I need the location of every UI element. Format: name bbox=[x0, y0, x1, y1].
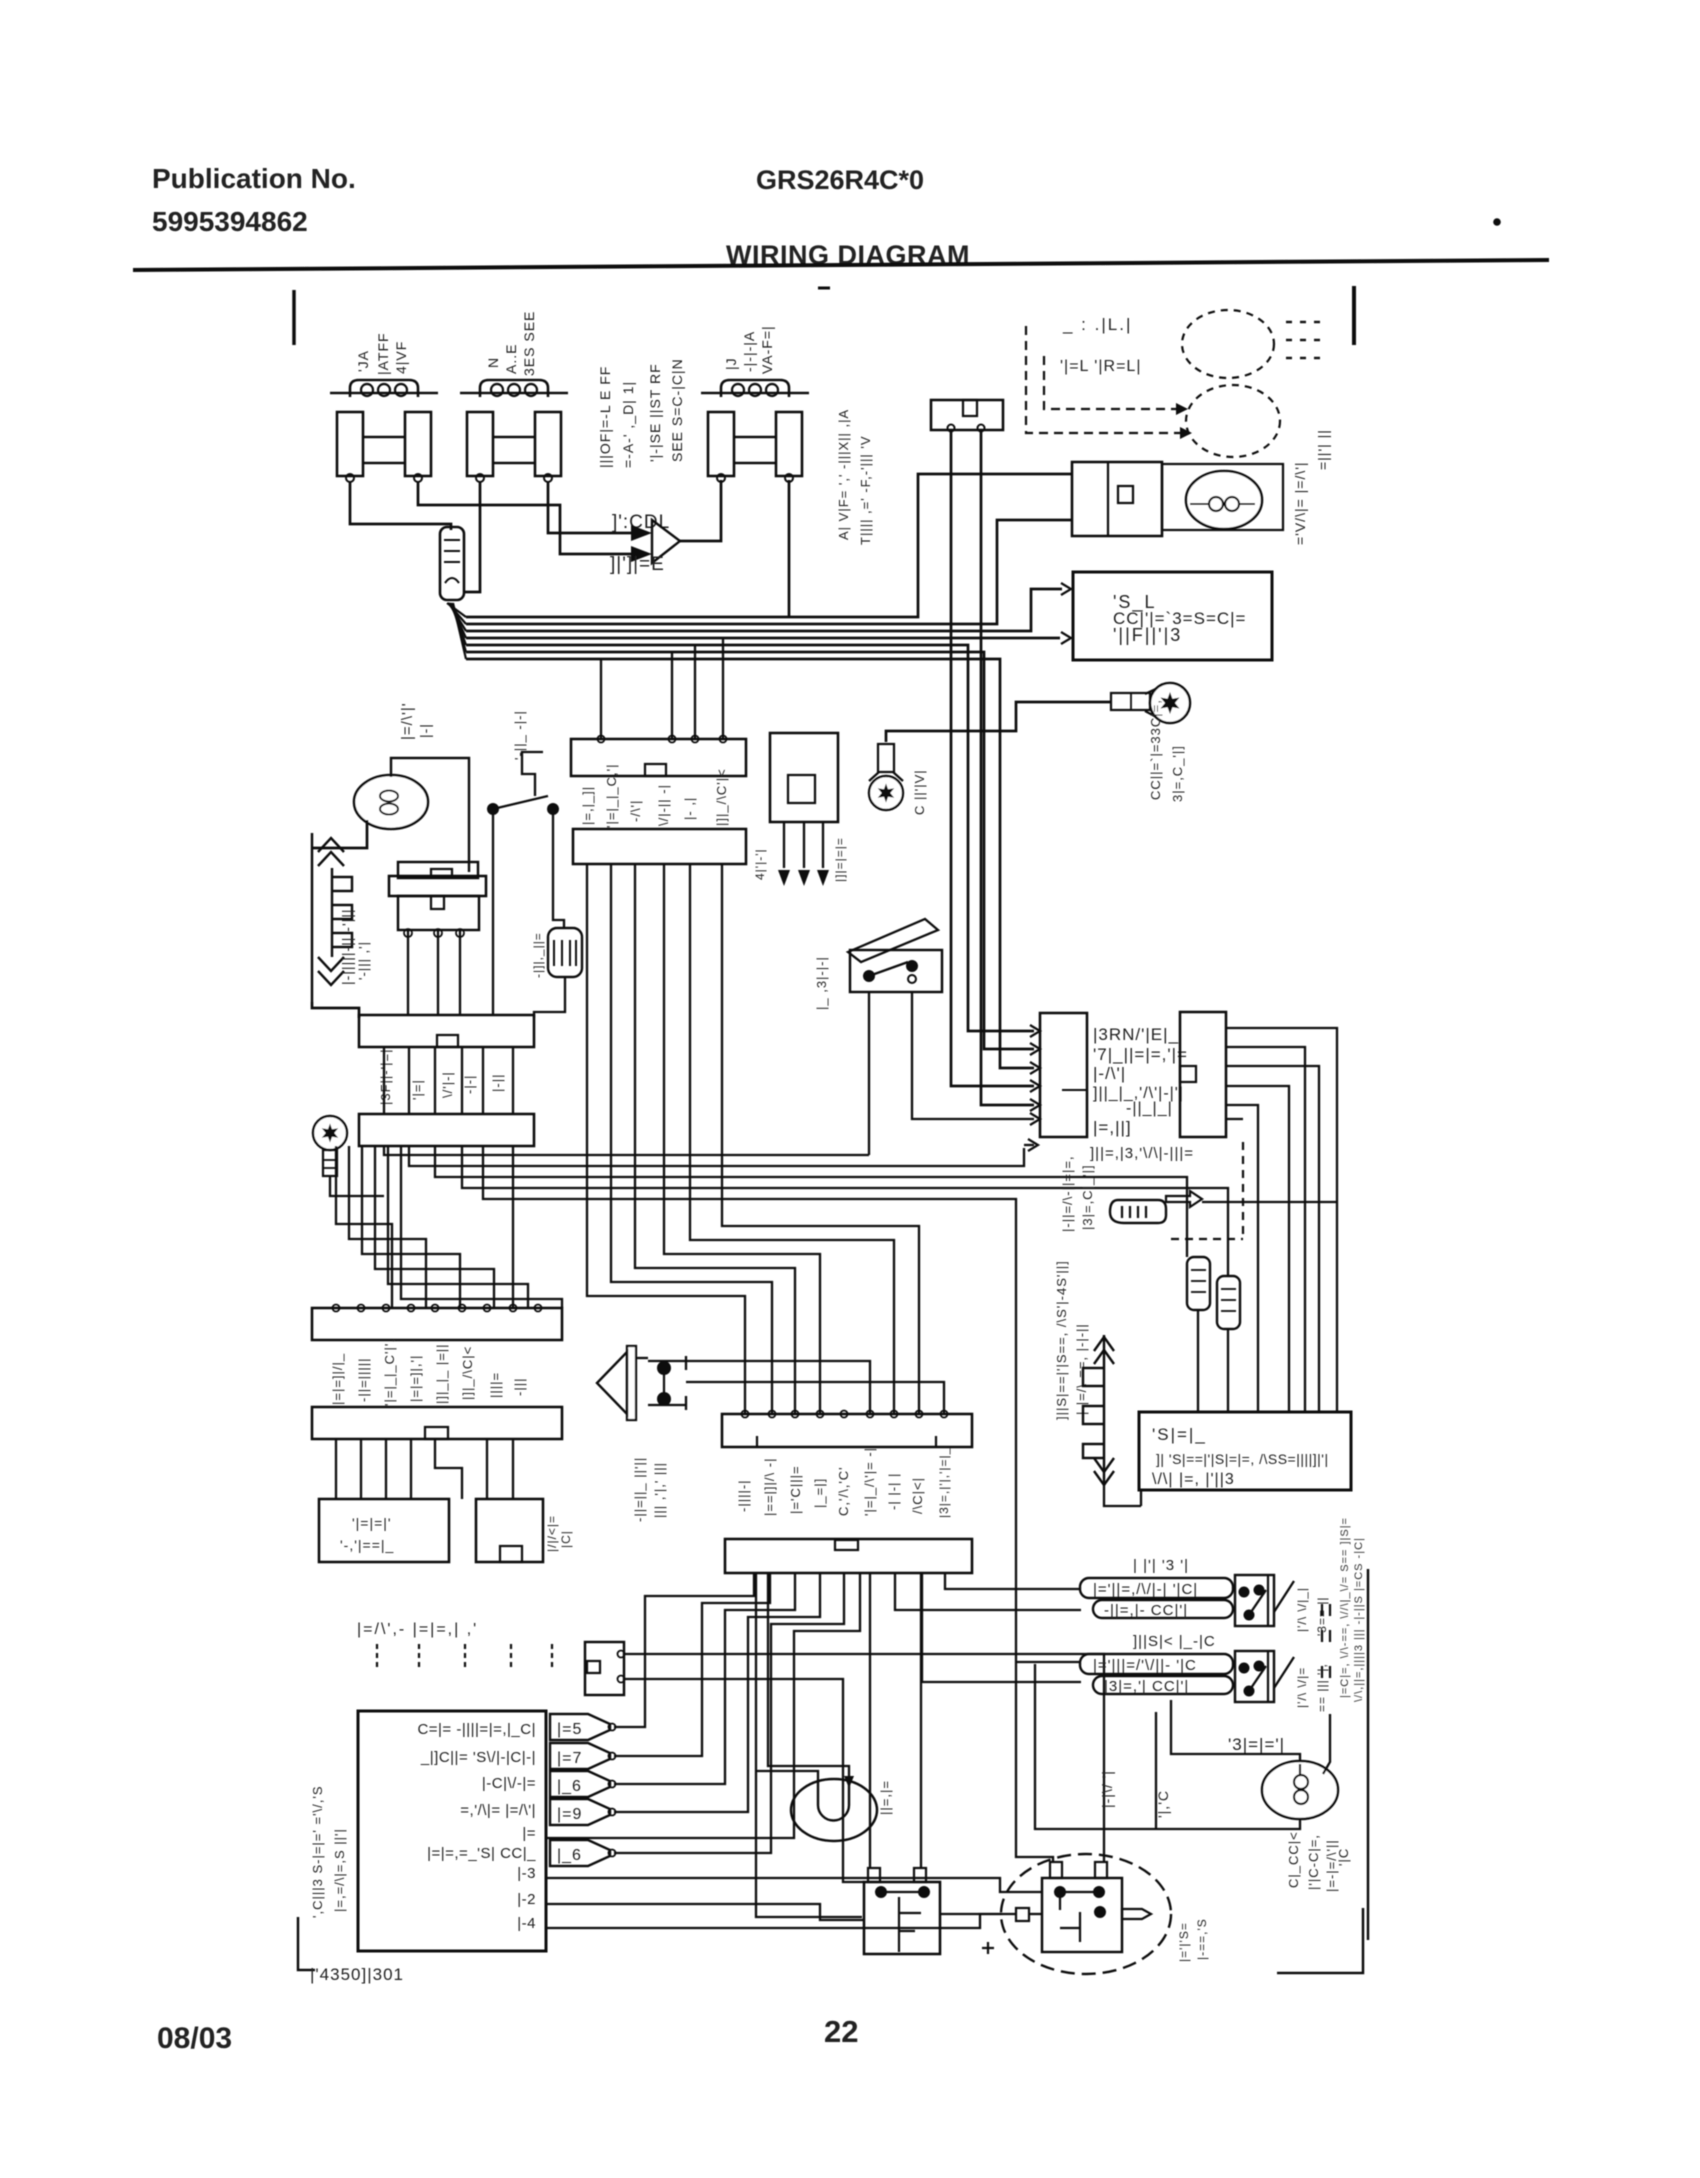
svg-text:'||F||'|3: '||F||'|3 bbox=[1113, 625, 1182, 645]
svg-text:||=,|=: ||=,|= bbox=[878, 1780, 893, 1815]
svg-text:|]|=|=|=: |]|=|=|= bbox=[833, 837, 847, 882]
svg-text:GRS26R4C*0: GRS26R4C*0 bbox=[756, 165, 924, 195]
svg-text:=||'| ||: =||'| || bbox=[1315, 429, 1331, 470]
svg-text:'|=|=|': '|=|=|' bbox=[352, 1515, 392, 1531]
svg-text:|_=|]: |_=|] bbox=[812, 1478, 827, 1508]
svg-text:|3F||-'|=|: |3F||-'|=| bbox=[378, 1049, 393, 1105]
svg-text:|=,||]: |=,||] bbox=[1093, 1118, 1132, 1137]
svg-text:22: 22 bbox=[824, 2014, 858, 2049]
svg-text:5995394862: 5995394862 bbox=[152, 206, 308, 237]
svg-text:]||S|==|'|S==, /\S'|-4S'||]: ]||S|==|'|S==, /\S'|-4S'||] bbox=[1054, 1260, 1069, 1420]
svg-text:|_ ,3|-|-|: |_ ,3|-|-| bbox=[814, 956, 829, 1010]
svg-text:|=/\'|': |=/\'|' bbox=[399, 702, 416, 740]
svg-text:'JA: 'JA bbox=[355, 350, 371, 372]
svg-text:-||=,|- CC|'|: -||=,|- CC|'| bbox=[1104, 1602, 1188, 1619]
svg-text:VA-F=|: VA-F=| bbox=[759, 325, 775, 374]
svg-text:C=|= -||||=|=,|_C|: C=|= -||||=|=,|_C| bbox=[417, 1721, 536, 1738]
svg-text:]||=,|3,'\/\|-|||=: ]||=,|3,'\/\|-|||= bbox=[1090, 1145, 1194, 1162]
svg-text:-/\'|: -/\'| bbox=[628, 800, 643, 822]
svg-text:]||S|< |_-|C: ]||S|< |_-|C bbox=[1133, 1633, 1216, 1650]
svg-text:'|C: '|C bbox=[1336, 1848, 1351, 1866]
svg-text:\/\,||=,||||3 ||| -|-||S |=CS: \/\,||=,||||3 ||| -|-||S |=CS -|C| bbox=[1353, 1537, 1365, 1702]
svg-text:-| |-| |: -| |-| | bbox=[886, 1473, 901, 1510]
svg-text:|='|||=/'\/||- '|C: |='|||=/'\/||- '|C bbox=[1093, 1657, 1197, 1674]
svg-text:|='||=,/\/|-| '|C|: |='||=,/\/|-| '|C| bbox=[1093, 1581, 1198, 1598]
svg-text:CC||=`|=33C|=,: CC||=`|=33C|=, bbox=[1148, 699, 1163, 800]
svg-text:=-A-' ,_D| 1|: =-A-' ,_D| 1| bbox=[620, 381, 636, 468]
svg-text:-|]|,_||=: -|]|,_||= bbox=[531, 932, 545, 978]
svg-text:|_6: |_6 bbox=[557, 1778, 582, 1795]
svg-text:== ||| '|,: == ||| '|, bbox=[1315, 1663, 1329, 1712]
svg-text:-|||: -||| bbox=[512, 1378, 527, 1396]
svg-text:|=,|_]|: |=,|_]| bbox=[580, 786, 595, 825]
svg-text:|3RN/'|E|_: |3RN/'|E|_ bbox=[1093, 1025, 1179, 1044]
svg-text:'3== ||: '3== || bbox=[1315, 1596, 1329, 1636]
svg-text:|'/\ \/|_|: |'/\ \/|_| bbox=[1295, 1587, 1309, 1632]
svg-text:-||=|||||: -||=||||| bbox=[356, 1357, 371, 1402]
svg-text:4|VF: 4|VF bbox=[393, 341, 409, 374]
svg-text:|-||: |-|| bbox=[490, 1074, 505, 1092]
svg-text:||| ,'|,' |||: ||| ,'|,' ||| bbox=[652, 1462, 667, 1518]
svg-text:|-==,'S: |-==,'S bbox=[1195, 1918, 1209, 1960]
svg-text:|3|=,C|_'|]: |3|=,C|_'|] bbox=[1080, 1164, 1095, 1230]
svg-text:'|=L '|R=L|: '|=L '|R=L| bbox=[1060, 358, 1141, 375]
svg-text:_ : .|L.|: _ : .|L.| bbox=[1062, 315, 1132, 334]
svg-text:/\C|<|: /\C|<| bbox=[910, 1477, 925, 1514]
svg-text:|]|_|_ |=||: |]|_|_ |=|| bbox=[434, 1343, 449, 1404]
svg-text:|3|=,'| CC|'|: |3|=,'| CC|'| bbox=[1104, 1678, 1189, 1695]
svg-text:\/'|-|: \/'|-| bbox=[440, 1071, 455, 1098]
svg-text:|-||=/\-||=|=,: |-||=/\-||=|=, bbox=[1060, 1155, 1075, 1232]
svg-text:'-||| ,'|: '-||| ,'| bbox=[356, 941, 371, 980]
svg-text:|=|=]|,'|: |=|=]|,'| bbox=[408, 1355, 423, 1402]
svg-text:| |'| '3 '|: | |'| '3 '| bbox=[1133, 1557, 1189, 1574]
svg-text:SEE S=C-|C|N: SEE S=C-|C|N bbox=[669, 358, 685, 462]
svg-text:|-3: |-3 bbox=[517, 1865, 536, 1882]
svg-text:'|=|: '|=| bbox=[410, 1079, 425, 1100]
svg-text:|'4350]|301: |'4350]|301 bbox=[310, 1965, 404, 1984]
svg-text:|='C|||=: |='C|||= bbox=[788, 1465, 803, 1514]
svg-text:|/|/<|=: |/|/<|= bbox=[545, 1515, 559, 1552]
svg-text:|=: |= bbox=[522, 1825, 536, 1842]
svg-text:|]|_/\C|<: |]|_/\C|< bbox=[460, 1346, 475, 1400]
svg-text:-|-|: -|-| bbox=[462, 1075, 477, 1094]
svg-text:-||||-|: -||||-| bbox=[736, 1479, 751, 1512]
svg-text:'-,'|==|_: '-,'|==|_ bbox=[340, 1537, 394, 1553]
svg-text:|=C|=, \/\-==, \//\|_\/= S== ]: |=C|=, \/\-==, \//\|_\/= S== ]|S|= bbox=[1339, 1517, 1351, 1698]
svg-text:'7|_||=|=,'|=: '7|_||=|=,'|= bbox=[1093, 1045, 1188, 1064]
svg-text:|-|||||-|| -'|||: |-|||||-|| -'||| bbox=[339, 908, 355, 985]
svg-text:'|=|_|_C,'|: '|=|_|_C,'| bbox=[604, 763, 619, 828]
svg-text:=,'/\|= |=/\'|: =,'/\|= |=/\'| bbox=[460, 1802, 536, 1819]
svg-text:|-|: |-| bbox=[417, 723, 433, 738]
svg-text:|]|_/\C'|<: |]|_/\C'|< bbox=[714, 768, 729, 826]
svg-text:|=9: |=9 bbox=[557, 1806, 582, 1823]
svg-text:|-/\'|: |-/\'| bbox=[1093, 1064, 1126, 1083]
svg-text:T|||| ,=' -F,-'||| 'V: T|||| ,=' -F,-'||| 'V bbox=[858, 435, 873, 545]
svg-text:]| 'S|==|'|S|=|=, /\SS=||||]|': ]| 'S|==|'|S|=|=, /\SS=||||]|'| bbox=[1156, 1451, 1329, 1467]
svg-text:|=5: |=5 bbox=[557, 1721, 582, 1738]
svg-text:|==|]|/\ -|: |==|]|/\ -| bbox=[762, 1458, 777, 1516]
svg-text:|C|: |C| bbox=[559, 1530, 573, 1548]
svg-text:|'|C-C|=,: |'|C-C|=, bbox=[1306, 1834, 1321, 1890]
svg-text:|=|=]|/|_: |=|=]|/|_ bbox=[330, 1353, 345, 1405]
svg-text:4|'|-'|: 4|'|-'| bbox=[753, 848, 767, 880]
svg-text:A..E: A..E bbox=[503, 344, 519, 374]
svg-text:'|-|SE ||ST RF: '|-|SE ||ST RF bbox=[647, 363, 663, 462]
svg-text:-|-|-|A: -|-|-|A bbox=[741, 331, 757, 372]
svg-text:|- ,|: |- ,| bbox=[682, 797, 697, 820]
svg-text:A| V|F= ',' -|||X|| ,|A: A| V|F= ',' -|||X|| ,|A bbox=[836, 409, 851, 540]
svg-text:N: N bbox=[485, 357, 501, 368]
svg-text:'|=|_|_C'|',: '|=|_|_C'|', bbox=[382, 1338, 397, 1406]
svg-text:C ||'|V|: C ||'|V| bbox=[912, 769, 927, 815]
svg-text:3ES SEE: 3ES SEE bbox=[521, 311, 537, 376]
svg-text:|'/\ \/|=: |'/\ \/|= bbox=[1295, 1667, 1309, 1708]
svg-text:||||=: ||||= bbox=[488, 1372, 503, 1398]
svg-text:|||OF|=-L E FF: |||OF|=-L E FF bbox=[597, 366, 613, 468]
svg-text:|='|'S=: |='|'S= bbox=[1177, 1922, 1191, 1962]
svg-text:-||_|_|: -||_|_| bbox=[1126, 1100, 1173, 1117]
svg-text:\/\| |=, |'||3: \/\| |=, |'||3 bbox=[1152, 1471, 1235, 1488]
svg-text:C,'/\,'C': C,'/\,'C' bbox=[836, 1466, 851, 1516]
svg-text:|=/\',- |=|=,| ,': |=/\',- |=|=,| ,' bbox=[357, 1621, 478, 1638]
svg-text:08/03: 08/03 bbox=[157, 2022, 232, 2055]
svg-text:|-4: |-4 bbox=[517, 1915, 536, 1932]
svg-text:='V/\|= |=/\'|: ='V/\|= |=/\'| bbox=[1292, 461, 1308, 545]
svg-text:_|]C||= 'S\/|-|C|-|: _|]C||= 'S\/|-|C|-| bbox=[420, 1749, 536, 1766]
svg-text:\/|-|| -|: \/|-|| -| bbox=[656, 784, 671, 826]
svg-text:'S|=|_: 'S|=|_ bbox=[1152, 1425, 1207, 1444]
svg-text:|J: |J bbox=[723, 357, 739, 370]
svg-text:|-|\/ '|: |-|\/ '| bbox=[1099, 1770, 1115, 1808]
svg-text:-||=||_ ||'||: -||=||_ ||'|| bbox=[632, 1457, 647, 1522]
svg-text:|ATFF: |ATFF bbox=[375, 332, 391, 375]
svg-text:'3|=|='|: '3|=|='| bbox=[1228, 1735, 1285, 1754]
svg-text:|-C|\/-|=: |-C|\/-|= bbox=[482, 1775, 536, 1792]
svg-text:'|=|_/\'|= -|: '|=|_/\'|= -| bbox=[862, 1447, 877, 1516]
svg-text:3|=,C_'|]: 3|=,C_'|] bbox=[1170, 745, 1185, 802]
svg-text:'|,'C: '|,'C bbox=[1155, 1790, 1171, 1818]
svg-text:C|_CC|<: C|_CC|< bbox=[1286, 1831, 1301, 1888]
svg-text:|=,=/\|=,S ||'|: |=,=/\|=,S ||'| bbox=[332, 1828, 347, 1912]
svg-text:|3|=,|'|,'|=|_: |3|=,|'|,'|=|_ bbox=[937, 1447, 951, 1518]
svg-text:]|']|=E: ]|']|=E bbox=[610, 554, 665, 575]
svg-text:|=7: |=7 bbox=[557, 1750, 582, 1767]
svg-text:|=|=,=_'S| CC|_: |=|=,=_'S| CC|_ bbox=[427, 1845, 536, 1862]
svg-text:|_6: |_6 bbox=[557, 1847, 582, 1864]
svg-text:|-2: |-2 bbox=[517, 1891, 536, 1908]
svg-text:Publication No.: Publication No. bbox=[152, 163, 356, 194]
svg-text:',C|||3 S-|=|=' ='\/,'S: ',C|||3 S-|=|=' ='\/,'S bbox=[310, 1785, 325, 1918]
svg-text:'-||_ -|-|: '-||_ -|-| bbox=[512, 710, 527, 760]
